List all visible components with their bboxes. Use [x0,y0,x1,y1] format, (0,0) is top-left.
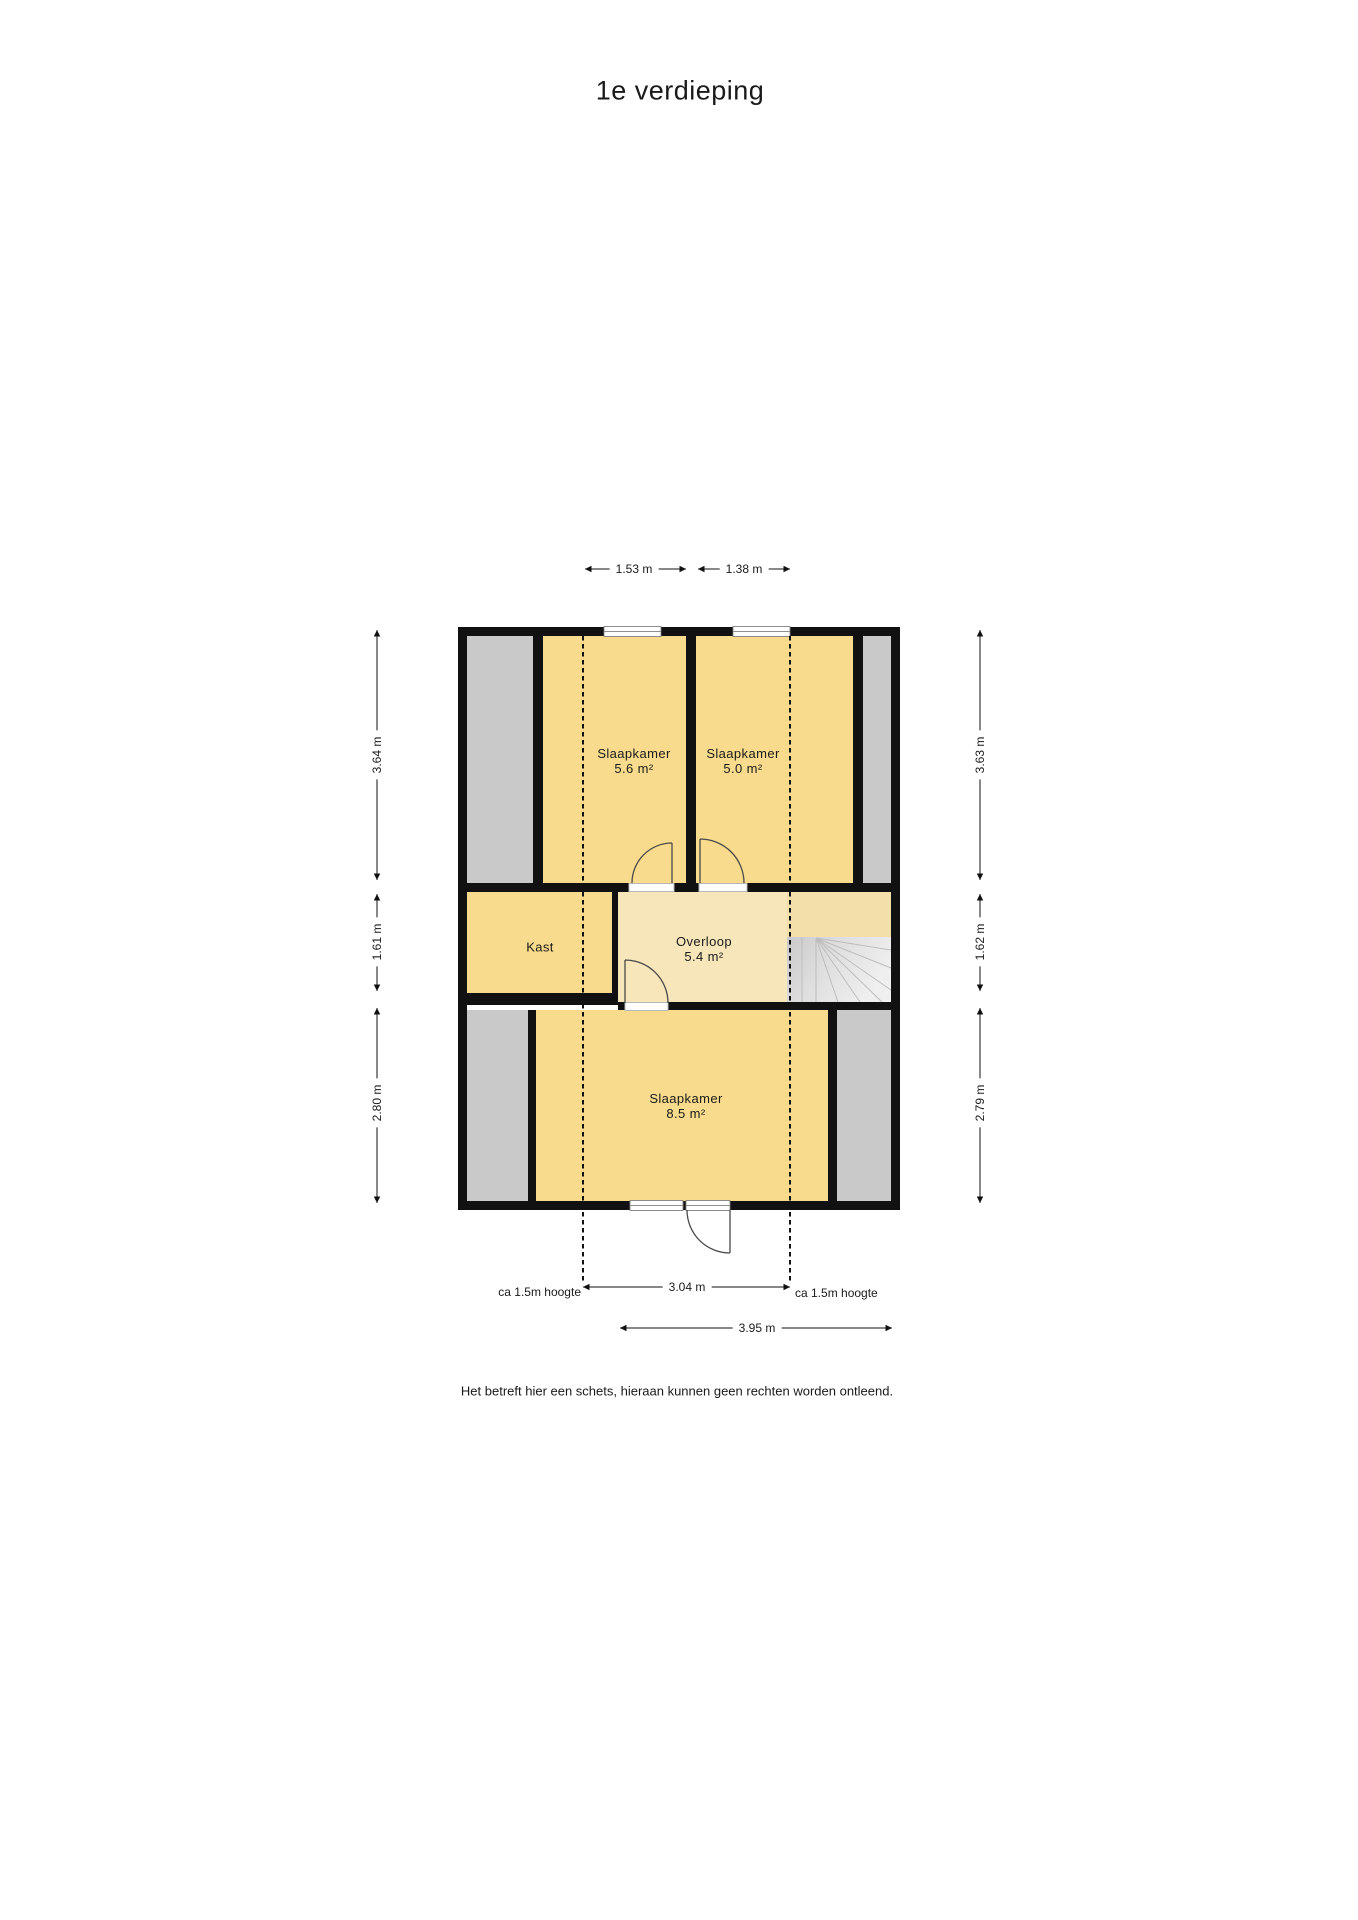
stairs [787,937,891,1002]
room-label-bedroom-top-right: Slaapkamer 5.0 m² [706,746,779,776]
dim-label-bottom-1: 3.04 m [663,1280,712,1294]
wall-top-right-strip [853,636,863,883]
room-name: Slaapkamer [597,746,670,761]
dim-label-left-1: 3.64 m [370,731,384,780]
room-label-bedroom-top-left: Slaapkamer 5.6 m² [597,746,670,776]
disclaimer-text: Het betreft hier een schets, hieraan kun… [461,1384,893,1399]
threshold-bedroom-bottom [625,1003,668,1011]
threshold-bedroom-top-left [629,884,674,892]
wall-closet-bottom [458,993,618,1005]
threshold-bedroom-top-right [699,884,747,892]
room-name: Slaapkamer [706,746,779,761]
floorplan-page: 1e verdieping [0,0,1358,1920]
roof-space-top-left [467,636,533,883]
wall-between-bedrooms [686,636,696,883]
roof-space-bottom-right [837,1010,891,1201]
wall-outer-top [458,627,900,636]
room-name: Slaapkamer [649,1091,722,1106]
room-label-landing: Overloop 5.4 m² [676,934,732,964]
wall-bottom-right-strip [828,1010,837,1201]
wall-closet-landing [612,892,618,1005]
room-name: Kast [526,940,554,955]
room-area: 5.6 m² [597,761,670,776]
wall-outer-left [458,627,467,1210]
room-area: 5.4 m² [676,949,732,964]
wall-middle-horizontal [458,883,900,892]
dim-label-left-2: 1.61 m [370,918,384,967]
dim-label-right-1: 3.63 m [973,731,987,780]
wall-bottom-left-strip [528,1010,536,1201]
height-note-right: ca 1.5m hoogte [795,1286,878,1300]
room-label-bedroom-bottom: Slaapkamer 8.5 m² [649,1091,722,1121]
dim-label-top-1: 1.53 m [610,562,659,576]
door-exterior-bottom [687,1210,730,1253]
height-note-left: ca 1.5m hoogte [498,1285,581,1299]
dim-label-right-2: 1.62 m [973,918,987,967]
landing-stair-headroom-shade [787,892,891,937]
wall-outer-right [891,627,900,1210]
room-label-closet: Kast [526,940,554,955]
roof-space-bottom-left [467,1010,528,1201]
dim-label-top-2: 1.38 m [720,562,769,576]
dim-label-left-3: 2.80 m [370,1079,384,1128]
room-name: Overloop [676,934,732,949]
wall-top-left-strip [533,636,543,883]
dim-label-bottom-2: 3.95 m [733,1321,782,1335]
room-area: 5.0 m² [706,761,779,776]
room-area: 8.5 m² [649,1106,722,1121]
dim-label-right-3: 2.79 m [973,1079,987,1128]
roof-space-top-right [863,636,891,883]
